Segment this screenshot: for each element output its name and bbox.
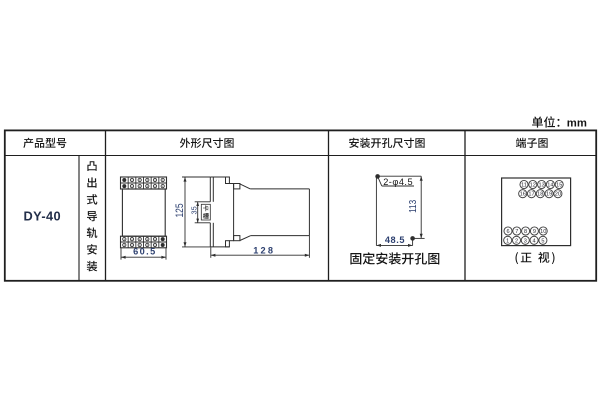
svg-text:128: 128 [253, 245, 275, 255]
svg-text:16: 16 [520, 192, 526, 198]
svg-text:18: 18 [537, 192, 543, 198]
svg-text:15: 15 [556, 183, 562, 189]
svg-text:19: 19 [546, 192, 552, 198]
svg-text:20: 20 [555, 192, 561, 198]
svg-text:DY-40: DY-40 [24, 209, 62, 224]
svg-text:6: 6 [506, 229, 509, 235]
svg-text:mm: mm [567, 118, 587, 130]
svg-text:9: 9 [533, 229, 536, 235]
svg-text:10: 10 [540, 229, 546, 235]
svg-text:7: 7 [515, 229, 518, 235]
svg-text:14: 14 [547, 183, 553, 189]
svg-text:125: 125 [174, 203, 186, 217]
svg-text:8: 8 [524, 229, 527, 235]
svg-text:2-φ4.5: 2-φ4.5 [383, 177, 413, 187]
svg-text:17: 17 [528, 192, 534, 198]
svg-text:48.5: 48.5 [385, 235, 405, 245]
svg-text:1: 1 [506, 238, 509, 244]
svg-text:4: 4 [533, 238, 536, 244]
svg-text:35: 35 [190, 206, 199, 214]
svg-text:113: 113 [407, 200, 418, 213]
svg-text:3: 3 [524, 238, 527, 244]
svg-text:12: 12 [530, 183, 536, 189]
svg-text:11: 11 [521, 183, 527, 189]
svg-text:13: 13 [538, 183, 544, 189]
svg-text:60.5: 60.5 [133, 247, 156, 257]
svg-text:5: 5 [541, 238, 544, 244]
svg-text:2: 2 [515, 238, 518, 244]
